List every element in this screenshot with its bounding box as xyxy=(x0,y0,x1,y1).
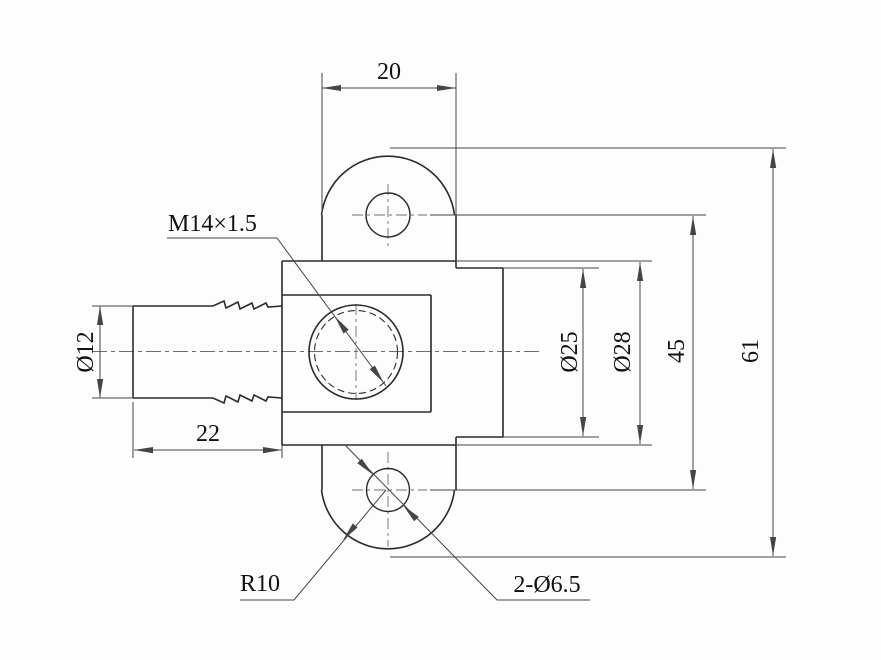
arrow-thread-lower xyxy=(370,366,384,383)
label-top-width: 20 xyxy=(377,59,401,85)
label-lobe-radius: R10 xyxy=(240,571,280,597)
label-body-diameter: Ø28 xyxy=(610,331,636,372)
engineering-drawing: 20 M14×1.5 Ø12 22 Ø25 Ø28 45 61 R10 2-Ø6… xyxy=(0,0,881,660)
arrow-61-bottom xyxy=(770,537,776,556)
arrow-d28-top xyxy=(637,262,643,281)
arrow-20-left xyxy=(322,85,341,91)
arrow-d28-bottom xyxy=(637,425,643,444)
dim-overall-height-lines xyxy=(390,148,786,557)
arrow-d12-bottom xyxy=(97,379,103,398)
label-mounting-holes: 2-Ø6.5 xyxy=(513,572,580,598)
label-overall-height: 61 xyxy=(738,339,764,363)
label-thread-spec: M14×1.5 xyxy=(168,211,257,237)
shaft-top-edge-with-barbs xyxy=(133,301,282,309)
dimension-lines xyxy=(92,73,786,600)
arrow-d12-top xyxy=(97,306,103,325)
arrow-hole-upper xyxy=(357,459,373,475)
label-bore-diameter: Ø25 xyxy=(557,331,583,372)
arrow-22-left xyxy=(134,447,153,453)
arrowheads xyxy=(97,85,776,556)
shaft-bottom-edge-with-barbs xyxy=(133,395,282,403)
label-shaft-diameter: Ø12 xyxy=(73,331,99,372)
arrow-20-right xyxy=(437,85,456,91)
arrow-d25-top xyxy=(580,269,586,288)
arrow-45-top xyxy=(690,216,696,235)
arrow-d25-bottom xyxy=(580,417,586,436)
drawing-canvas: 20 M14×1.5 Ø12 22 Ø25 Ø28 45 61 R10 2-Ø6… xyxy=(0,0,881,660)
arrow-61-top xyxy=(770,149,776,168)
arrow-22-right xyxy=(263,447,282,453)
dim-bore-diameter-lines xyxy=(503,268,599,437)
label-shaft-length: 22 xyxy=(196,421,220,447)
arrow-45-bottom xyxy=(690,470,696,489)
arrow-thread-upper xyxy=(335,316,349,333)
boss-face-lines xyxy=(282,295,431,412)
label-hole-spacing: 45 xyxy=(664,339,690,363)
arrow-hole-lower xyxy=(403,506,419,522)
